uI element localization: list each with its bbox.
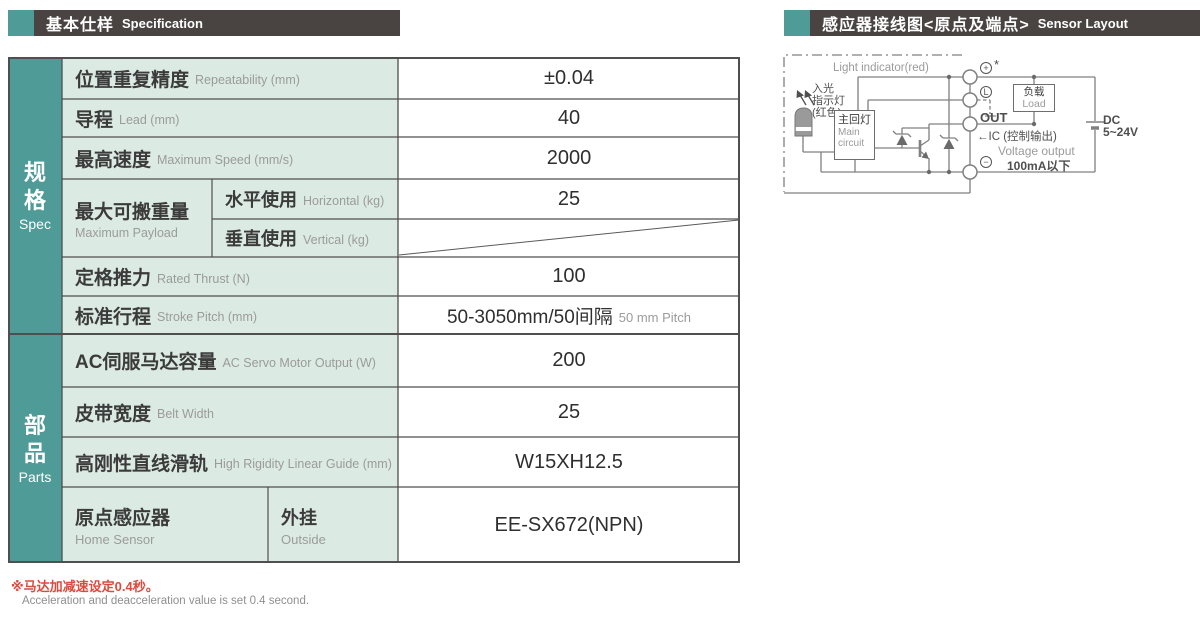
guide-label-en: High Rigidity Linear Guide (mm) xyxy=(214,457,392,471)
mount-label-en: Outside xyxy=(281,532,398,547)
stroke-value-zh: 50-3050mm/50间隔 xyxy=(447,302,613,329)
load-label-zh: 负载 xyxy=(1014,86,1054,99)
horizontal-label-en: Horizontal (kg) xyxy=(303,194,384,208)
motor-label-en: AC Servo Motor Output (W) xyxy=(222,356,376,370)
row-thrust: 定格推力 Rated Thrust (N) xyxy=(62,257,398,296)
main-circuit-zh: 主回灯 xyxy=(835,114,874,127)
row-belt: 皮带宽度 Belt Width xyxy=(62,387,398,437)
main-circuit-en1: Main xyxy=(835,127,874,139)
footnote-zh: ※马达加减速设定0.4秒。 xyxy=(11,576,159,595)
belt-label-zh: 皮带宽度 xyxy=(75,399,151,426)
stroke-value-en: 50 mm Pitch xyxy=(619,310,691,325)
spec-sheet-page: 基本仕样 Specification 感应器接线图<原点及端点> Sensor … xyxy=(0,0,1200,617)
led-icon xyxy=(795,108,812,136)
stroke-value: 50-3050mm/50间隔 50 mm Pitch xyxy=(398,296,740,334)
lead-label-zh: 导程 xyxy=(75,105,113,132)
right-header-bar: 感应器接线图<原点及端点> Sensor Layout xyxy=(810,10,1200,36)
terminal-circle-light xyxy=(963,93,977,107)
row-payload: 最大可搬重量 Maximum Payload xyxy=(62,179,212,257)
right-header-accent-square xyxy=(784,10,810,36)
row-repeatability: 位置重复精度 Repeatability (mm) xyxy=(62,57,398,99)
left-header-accent-square xyxy=(8,10,34,36)
thrust-label-en: Rated Thrust (N) xyxy=(157,272,250,286)
terminal-circle-plus xyxy=(963,70,977,84)
repeatability-label-en: Repeatability (mm) xyxy=(195,73,300,87)
right-header-title-zh: 感应器接线图<原点及端点> xyxy=(822,11,1030,35)
zener-diode-icon xyxy=(893,128,929,148)
row-payload-horizontal: 水平使用 Horizontal (kg) xyxy=(212,179,398,219)
battery-icon xyxy=(1086,122,1104,128)
light-terminal-icon: L xyxy=(980,86,992,98)
transistor-icon xyxy=(920,124,929,172)
lead-value: 40 xyxy=(398,99,740,137)
main-circuit-box: 主回灯 Main circuit xyxy=(834,110,875,160)
payload-horizontal-value: 25 xyxy=(398,179,740,219)
row-guide: 高刚性直线滑轨 High Rigidity Linear Guide (mm) xyxy=(62,437,398,487)
home-sensor-value: EE-SX672(NPN) xyxy=(398,487,740,563)
ic-output-label: ←IC (控制输出) xyxy=(977,128,1057,144)
row-motor: AC伺服马达容量 AC Servo Motor Output (W) xyxy=(62,334,398,387)
right-header-title-en: Sensor Layout xyxy=(1038,16,1128,31)
thrust-value: 100 xyxy=(398,257,740,296)
left-header-title-zh: 基本仕样 xyxy=(46,11,114,35)
payload-label-en: Maximum Payload xyxy=(75,226,212,240)
load-label-en: Load xyxy=(1014,99,1054,111)
section-header-parts: 部品 Parts xyxy=(8,334,62,563)
payload-vertical-value xyxy=(398,219,740,257)
thrust-label-zh: 定格推力 xyxy=(75,263,151,290)
row-max-speed: 最高速度 Maximum Speed (mm/s) xyxy=(62,137,398,179)
section-parts-en: Parts xyxy=(19,469,52,485)
motor-value: 200 xyxy=(398,334,740,387)
minus-terminal-icon: − xyxy=(980,156,992,168)
left-header-bar: 基本仕样 Specification xyxy=(34,10,400,36)
vertical-label-en: Vertical (kg) xyxy=(303,233,369,247)
belt-label-en: Belt Width xyxy=(157,407,214,421)
voltage-output-label: Voltage output xyxy=(998,144,1075,158)
row-payload-vertical: 垂直使用 Vertical (kg) xyxy=(212,219,398,257)
repeatability-value: ±0.04 xyxy=(398,57,740,99)
guide-label-zh: 高刚性直线滑轨 xyxy=(75,449,208,476)
stroke-label-en: Stroke Pitch (mm) xyxy=(157,310,257,324)
terminal-star: * xyxy=(994,57,999,72)
max-speed-label-zh: 最高速度 xyxy=(75,145,151,172)
max-speed-value: 2000 xyxy=(398,137,740,179)
dc-label-line2: 5~24V xyxy=(1103,125,1138,139)
motor-label-zh: AC伺服马达容量 xyxy=(75,347,216,374)
section-header-spec: 规格 Spec xyxy=(8,57,62,334)
terminal-circle-minus xyxy=(963,165,977,179)
terminal-circle-out xyxy=(963,117,977,131)
section-spec-zh: 规格 xyxy=(23,159,47,214)
row-home-sensor: 原点感应器 Home Sensor xyxy=(62,487,268,563)
zener-diode-icon xyxy=(940,77,958,172)
horizontal-label-zh: 水平使用 xyxy=(225,186,297,212)
max-speed-label-en: Maximum Speed (mm/s) xyxy=(157,153,293,167)
plus-terminal-icon: + xyxy=(980,62,992,74)
mount-label-zh: 外挂 xyxy=(281,504,398,530)
home-sensor-label-en: Home Sensor xyxy=(75,532,268,547)
row-stroke: 标准行程 Stroke Pitch (mm) xyxy=(62,296,398,334)
footnote-en: Acceleration and deacceleration value is… xyxy=(22,595,309,607)
light-indicator-caption: Light indicator(red) xyxy=(833,62,929,74)
stroke-label-zh: 标准行程 xyxy=(75,302,151,329)
current-limit-label: 100mA以下 xyxy=(1007,157,1070,174)
guide-value: W15XH12.5 xyxy=(398,437,740,487)
row-home-sensor-mount: 外挂 Outside xyxy=(268,487,398,563)
vertical-label-zh: 垂直使用 xyxy=(225,225,297,251)
belt-value: 25 xyxy=(398,387,740,437)
left-header-title-en: Specification xyxy=(122,16,203,31)
section-spec-en: Spec xyxy=(19,216,51,232)
home-sensor-label-zh: 原点感应器 xyxy=(75,503,268,530)
lead-label-en: Lead (mm) xyxy=(119,113,179,127)
main-circuit-en2: circuit xyxy=(835,138,874,150)
load-box: 负载 Load xyxy=(1013,84,1055,112)
repeatability-label-zh: 位置重复精度 xyxy=(75,65,189,92)
payload-label-zh: 最大可搬重量 xyxy=(75,197,212,224)
row-lead: 导程 Lead (mm) xyxy=(62,99,398,137)
out-terminal-label: OUT xyxy=(980,110,1007,125)
section-parts-zh: 部品 xyxy=(23,412,47,467)
terminal-circles xyxy=(963,70,977,179)
